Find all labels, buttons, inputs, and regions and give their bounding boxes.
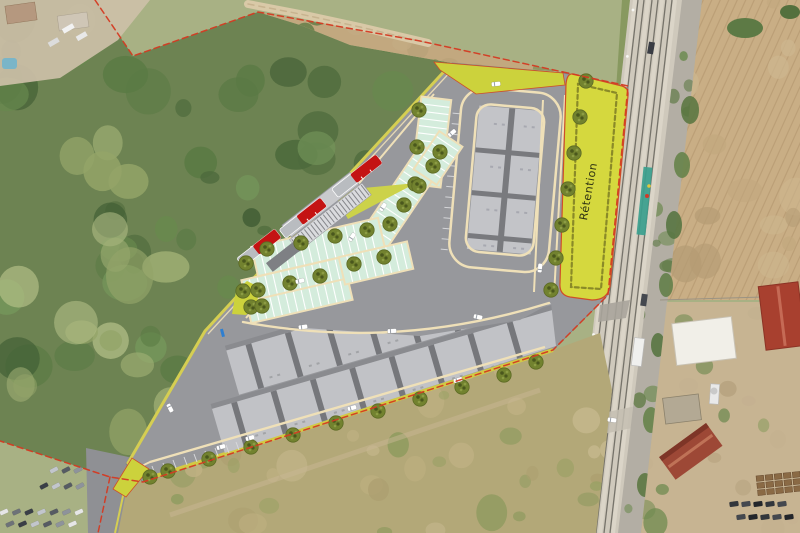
tree-symbol <box>255 299 269 313</box>
tree-symbol <box>347 257 361 271</box>
parked-car <box>30 520 39 527</box>
car-symbol <box>298 324 308 330</box>
parked-car <box>39 482 48 490</box>
parked-car <box>5 520 14 527</box>
parked-car <box>18 520 27 527</box>
tree-symbol <box>283 276 297 290</box>
parked-car <box>741 501 751 507</box>
parked-car <box>24 508 33 515</box>
parked-car <box>12 508 21 515</box>
parked-car <box>51 482 60 490</box>
tree-symbol <box>383 217 397 231</box>
tree-symbol <box>294 236 308 250</box>
tree-symbol <box>497 368 511 382</box>
tree-symbol <box>251 283 265 297</box>
parked-car <box>784 514 794 520</box>
car-symbol <box>491 81 500 86</box>
parked-car <box>43 520 52 527</box>
parked-car <box>0 508 9 515</box>
site-plan-svg: Rétention <box>0 0 800 533</box>
tree-symbol <box>236 284 250 298</box>
parked-car <box>63 482 72 490</box>
parked-car <box>772 514 782 520</box>
tree-symbol <box>544 283 558 297</box>
parked-car <box>62 508 71 515</box>
parked-car <box>37 508 46 515</box>
tree-symbol <box>567 146 581 160</box>
tree-symbol <box>413 392 427 406</box>
tree-symbol <box>360 223 374 237</box>
tree-symbol <box>412 179 426 193</box>
tree-symbol <box>579 74 593 88</box>
tree-symbol <box>371 404 385 418</box>
parked-car <box>777 501 787 507</box>
tree-symbol <box>377 250 391 264</box>
tree-symbol <box>549 251 563 265</box>
parked-car <box>753 501 763 507</box>
parked-car <box>748 514 758 520</box>
parked-car <box>68 520 77 527</box>
parked-car <box>729 501 739 507</box>
parked-car <box>49 508 58 515</box>
parked-car <box>74 508 83 515</box>
tree-symbol <box>529 355 543 369</box>
tree-symbol <box>260 242 274 256</box>
car-symbol <box>607 417 617 423</box>
parked-car <box>49 466 58 474</box>
parked-car <box>55 520 64 527</box>
tree-symbol <box>313 269 327 283</box>
tree-symbol <box>433 145 447 159</box>
car-symbol <box>537 263 542 272</box>
tree-symbol <box>410 140 424 154</box>
tree-symbol <box>239 256 253 270</box>
parked-car <box>736 514 746 520</box>
parked-car <box>61 466 70 474</box>
tree-symbol <box>397 198 411 212</box>
tree-symbol <box>561 182 575 196</box>
tree-symbol <box>412 103 426 117</box>
tree-symbol <box>329 416 343 430</box>
parked-car <box>75 482 84 490</box>
tree-symbol <box>328 229 342 243</box>
tree-symbol <box>573 110 587 124</box>
parked-car <box>765 501 775 507</box>
car-symbol <box>387 328 396 333</box>
tree-symbol <box>426 159 440 173</box>
aerial-site-plan: Rétention <box>0 0 800 533</box>
parked-car <box>760 514 770 520</box>
tree-symbol <box>555 218 569 232</box>
